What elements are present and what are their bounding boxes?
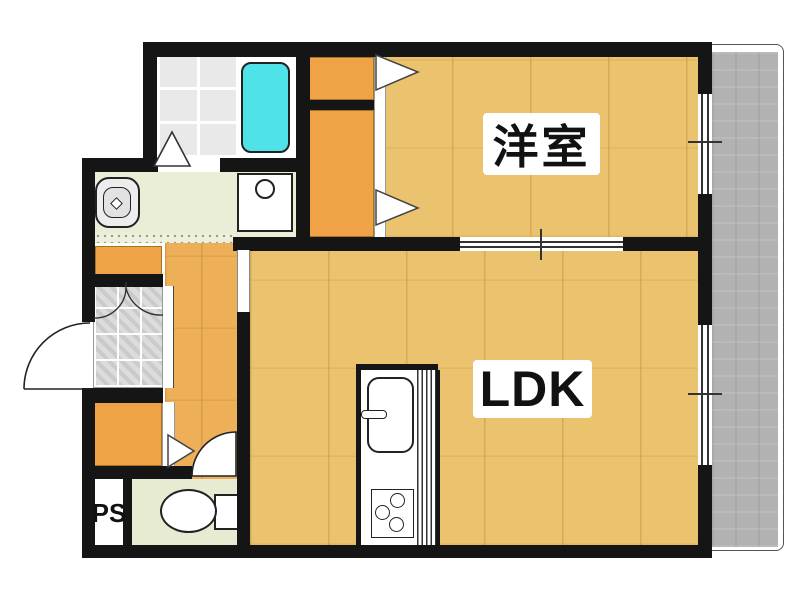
partition-window-tick [540,229,542,260]
stove-burner-3 [389,517,404,532]
kitchen-faucet-icon [361,410,387,419]
kitchen-counter-edge [417,370,437,545]
western-room-window-tick [688,141,722,143]
ldk-window-tick [688,393,722,395]
wall-below-shoe-closet [93,274,163,287]
kitchen-back-wall [356,364,438,370]
ldk-label: LDK [473,360,592,418]
wall-left-upper [82,160,95,322]
ldk-window-line-1 [701,325,703,465]
partition-window-line-1 [460,241,623,243]
partition-window-line-2 [460,246,623,248]
washing-machine-drain-icon [255,179,275,199]
shoe-closet [95,246,162,276]
hall-sliding-door [237,250,250,312]
closet-main [308,110,374,237]
western-room-label: 洋室 [483,113,600,175]
bathroom-floor [157,57,236,158]
wall-right-b [698,194,712,325]
washroom-threshold [95,233,233,243]
wall-toilet-top [82,466,192,479]
entrance-step [163,286,174,388]
entrance-tile [93,286,163,388]
wall-top [143,42,712,57]
wall-hall-ldk [237,312,250,545]
stove-burner-2 [375,505,390,520]
partition-window [460,237,623,251]
wall-right-a [698,42,712,94]
kitchen-counter-edge-line [436,370,440,545]
closet-door-strip [374,57,386,237]
entrance-door-icon [24,323,90,389]
ldk-window-line-2 [707,325,709,465]
kitchen-side-wall [356,364,361,545]
wall-right-c [698,465,712,558]
bathtub [241,62,290,153]
floor-plan: 洋室 LDK PS [0,0,800,600]
stove-burner-1 [390,493,405,508]
wall-bottom [82,545,712,558]
toilet-bowl [160,489,217,533]
wall-bath-left [143,42,157,172]
wall-mid-vertical [296,42,310,251]
wall-closet-divider [308,100,374,110]
ldk-label-text: LDK [480,360,586,418]
western-room-window-line-2 [707,94,709,194]
balcony [712,52,778,547]
western-room-label-text: 洋室 [493,111,591,177]
western-room-window-line-1 [701,94,703,194]
wall-ldk-top-left [233,237,460,251]
wall-ldk-top-right [623,237,698,251]
wall-below-entrance [82,388,163,403]
pipe-space-label: PS [93,497,125,529]
hall-closet-door-strip [162,402,175,466]
pipe-space-label-text: PS [92,498,127,529]
wall-bath-bottom-right [220,158,308,172]
closet-top [308,57,374,100]
hall-closet [94,402,162,466]
